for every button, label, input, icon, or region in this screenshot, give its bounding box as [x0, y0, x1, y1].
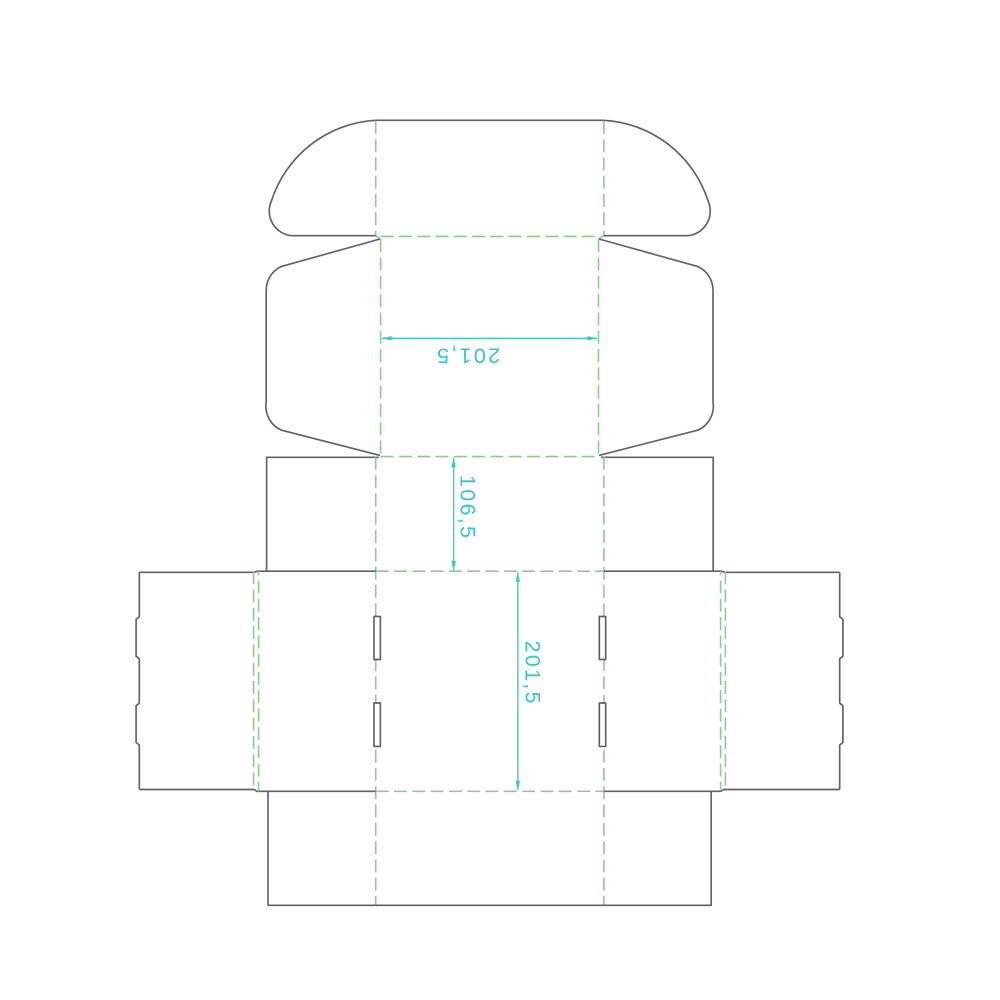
svg-text:201,5: 201,5: [435, 344, 500, 368]
svg-text:201,5: 201,5: [520, 641, 544, 706]
svg-text:106,5: 106,5: [455, 475, 479, 540]
